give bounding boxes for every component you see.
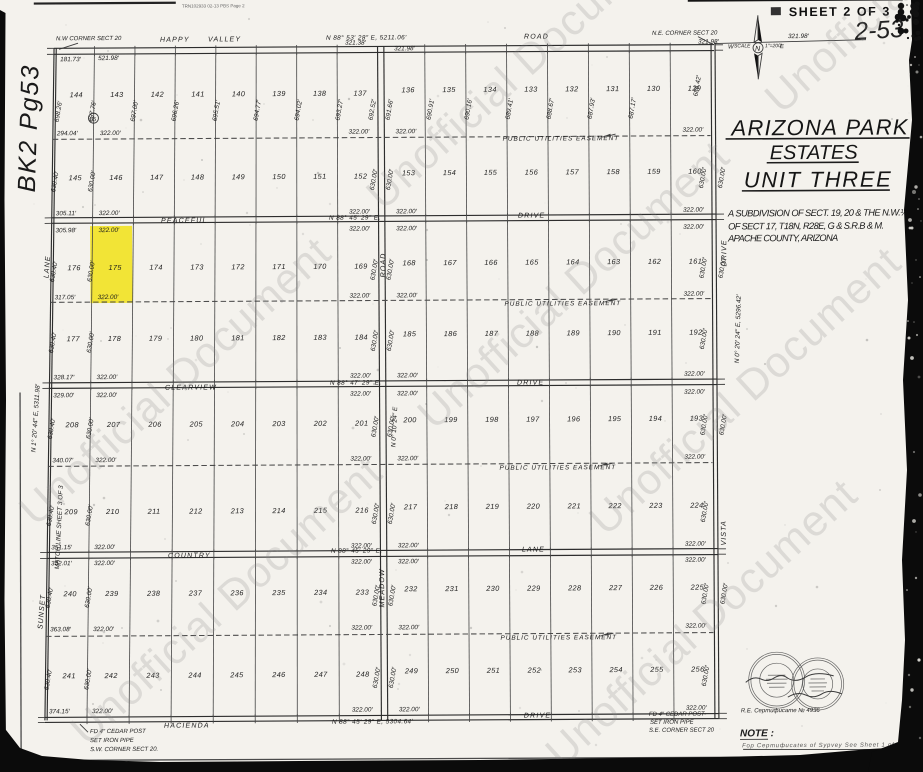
svg-text:147: 147 xyxy=(150,173,164,182)
svg-text:HACIENDA: HACIENDA xyxy=(164,722,210,729)
svg-text:322.00′: 322.00′ xyxy=(349,293,371,300)
svg-text:MEADOW: MEADOW xyxy=(377,568,386,607)
svg-text:SET IRON PIPE: SET IRON PIPE xyxy=(650,720,695,726)
svg-text:178: 178 xyxy=(108,334,122,343)
svg-text:146: 146 xyxy=(109,173,123,182)
svg-text:N.W CORNER SECT 20: N.W CORNER SECT 20 xyxy=(56,36,122,42)
svg-text:322.00′: 322.00′ xyxy=(397,455,419,462)
svg-text:168: 168 xyxy=(402,258,416,267)
svg-text:317.05′: 317.05′ xyxy=(55,294,77,301)
svg-text:169: 169 xyxy=(354,262,367,271)
svg-text:630.00′: 630.00′ xyxy=(387,502,398,525)
svg-text:322.00′: 322.00′ xyxy=(349,129,371,136)
svg-text:173: 173 xyxy=(190,262,203,271)
svg-text:221: 221 xyxy=(567,501,581,510)
svg-text:238: 238 xyxy=(146,589,161,598)
svg-text:521.98′: 521.98′ xyxy=(98,55,120,62)
svg-text:214: 214 xyxy=(271,506,285,515)
svg-text:185: 185 xyxy=(403,329,417,338)
svg-text:145: 145 xyxy=(69,173,83,182)
svg-text:322.00′: 322.00′ xyxy=(396,225,418,232)
svg-text:230: 230 xyxy=(485,584,499,593)
svg-text:630.00′: 630.00′ xyxy=(387,584,398,607)
svg-text:130: 130 xyxy=(647,84,660,93)
svg-text:166: 166 xyxy=(484,258,498,267)
svg-text:694.77′: 694.77′ xyxy=(253,99,264,122)
svg-text:322.00′: 322.00′ xyxy=(100,130,122,137)
svg-text:294.04′: 294.04′ xyxy=(56,130,79,137)
svg-text:204: 204 xyxy=(230,419,244,428)
svg-text:N: N xyxy=(755,46,761,53)
svg-text:696.26′: 696.26′ xyxy=(171,99,182,122)
svg-text:N 88° 45′ 29″ E, 5304.64′: N 88° 45′ 29″ E, 5304.64′ xyxy=(332,717,414,725)
svg-text:N 0° 20′ 24″ E, 5296.42′: N 0° 20′ 24″ E, 5296.42′ xyxy=(733,294,743,364)
svg-text:322.00′: 322.00′ xyxy=(97,374,119,381)
svg-text:183: 183 xyxy=(313,333,326,342)
svg-text:630.40′: 630.40′ xyxy=(48,331,59,354)
svg-text:186: 186 xyxy=(444,329,458,338)
svg-text:688.67′: 688.67′ xyxy=(546,97,557,120)
svg-text:LANE: LANE xyxy=(522,547,545,554)
svg-text:203: 203 xyxy=(271,419,285,428)
svg-text:143: 143 xyxy=(110,90,123,99)
svg-text:305.98′: 305.98′ xyxy=(55,227,77,234)
svg-text:172: 172 xyxy=(231,262,244,271)
svg-text:182: 182 xyxy=(272,333,285,342)
svg-text:155: 155 xyxy=(484,168,498,177)
svg-text:695.51′: 695.51′ xyxy=(212,99,223,122)
svg-text:PEACEFUL: PEACEFUL xyxy=(161,217,208,224)
svg-text:322.00′: 322.00′ xyxy=(398,624,420,631)
svg-text:227: 227 xyxy=(608,583,623,592)
svg-text:322.00′: 322.00′ xyxy=(93,626,115,633)
svg-text:139: 139 xyxy=(272,89,285,98)
svg-text:247: 247 xyxy=(313,670,328,679)
svg-text:322.00′: 322.00′ xyxy=(350,391,372,398)
svg-text:630.00′: 630.00′ xyxy=(84,504,95,527)
svg-text:TRN102933 02-13 PBS Page 2: TRN102933 02-13 PBS Page 2 xyxy=(182,3,245,8)
svg-text:165: 165 xyxy=(525,258,539,267)
svg-text:228: 228 xyxy=(567,583,582,592)
svg-text:PUBLIC UTILITIES EASEMENT: PUBLIC UTILITIES EASEMENT xyxy=(503,135,620,143)
svg-text:167: 167 xyxy=(443,258,457,267)
svg-text:321.98′: 321.98′ xyxy=(394,45,416,52)
svg-text:Unofficial Document: Unofficial Document xyxy=(61,448,391,755)
svg-text:157: 157 xyxy=(566,167,580,176)
svg-text:OF SECT 17, T18N, R28E, G: OF SECT 17, T18N, R28E, G & S.R.B & M. xyxy=(728,221,884,232)
svg-text:630.00′: 630.00′ xyxy=(386,329,397,352)
svg-text:SCALE: SCALE xyxy=(734,43,751,49)
svg-text:363.08′: 363.08′ xyxy=(50,626,72,633)
svg-text:N 1° 20′ 44″ E, 5311.98′: N 1° 20′ 44″ E, 5311.98′ xyxy=(29,383,41,452)
svg-text:FD 4″ CEDAR POST-: FD 4″ CEDAR POST- xyxy=(649,712,706,718)
svg-text:HAPPY: HAPPY xyxy=(160,37,190,44)
svg-text:N 88° 53′ 28″ E, 5211.06′: N 88° 53′ 28″ E, 5211.06′ xyxy=(326,33,407,41)
svg-text:136: 136 xyxy=(401,85,415,94)
svg-text:210: 210 xyxy=(105,507,119,516)
svg-text:211: 211 xyxy=(147,507,161,516)
svg-text:R.E. Cертифисате № 4936: R.E. Cертифисате № 4936 xyxy=(741,707,821,714)
svg-text:322.00′: 322.00′ xyxy=(352,707,374,714)
svg-text:N.E. CORNER SECT 20: N.E. CORNER SECT 20 xyxy=(652,31,718,37)
svg-text:DRIVE: DRIVE xyxy=(719,239,728,266)
svg-text:322.00′: 322.00′ xyxy=(94,560,116,567)
svg-text:322.00′: 322.00′ xyxy=(397,372,419,379)
svg-text:N 88° 47′ 29″ E,: N 88° 47′ 29″ E, xyxy=(330,378,382,386)
svg-text:COUNTRY: COUNTRY xyxy=(168,552,211,559)
svg-text:N 88° 45′ 29″ E,: N 88° 45′ 29″ E, xyxy=(331,546,383,554)
svg-text:BK2 Pg53: BK2 Pg53 xyxy=(13,63,45,192)
svg-text:252: 252 xyxy=(527,666,541,675)
svg-text:234: 234 xyxy=(313,588,327,597)
svg-text:253: 253 xyxy=(568,665,582,674)
svg-text:APACHE COUNTY, ARIZONA: APACHE COUNTY, ARIZONA xyxy=(727,233,838,244)
svg-text:630.00′: 630.00′ xyxy=(84,586,95,609)
svg-text:200: 200 xyxy=(402,415,416,424)
svg-text:LANE: LANE xyxy=(41,255,52,278)
svg-text:322.00′: 322.00′ xyxy=(98,227,120,234)
svg-text:148: 148 xyxy=(191,172,205,181)
svg-text:229: 229 xyxy=(526,584,540,593)
svg-text:135: 135 xyxy=(442,85,456,94)
svg-text:305.11′: 305.11′ xyxy=(56,210,77,217)
svg-text:140: 140 xyxy=(232,89,245,98)
svg-text:131: 131 xyxy=(606,84,619,93)
svg-text:322.00′: 322.00′ xyxy=(98,294,120,301)
svg-text:250: 250 xyxy=(445,666,459,675)
svg-text:138: 138 xyxy=(313,89,327,98)
svg-text:181.73′: 181.73′ xyxy=(60,56,82,63)
svg-text:194: 194 xyxy=(649,414,662,423)
svg-text:217: 217 xyxy=(403,502,418,511)
svg-text:212: 212 xyxy=(188,506,202,515)
svg-text:208: 208 xyxy=(64,420,79,429)
svg-text:322.00′: 322.00′ xyxy=(349,226,371,233)
svg-text:PUBLIC UTILITIES EASEMENT: PUBLIC UTILITIES EASEMENT xyxy=(500,634,617,642)
svg-text:ESTATES: ESTATES xyxy=(770,142,859,165)
svg-text:175: 175 xyxy=(108,263,122,272)
svg-text:687.17′: 687.17′ xyxy=(628,97,639,120)
svg-text:Unofficial Document: Unofficial Document xyxy=(580,238,910,545)
svg-text:213: 213 xyxy=(230,506,244,515)
svg-text:N 0° 10′ 24″ E: N 0° 10′ 24″ E xyxy=(389,406,399,447)
svg-text:322.00′: 322.00′ xyxy=(683,291,705,298)
svg-text:ROAD: ROAD xyxy=(378,253,387,278)
svg-text:190: 190 xyxy=(607,328,620,337)
svg-text:NOTE :: NOTE : xyxy=(740,728,774,739)
svg-text:162: 162 xyxy=(648,257,661,266)
svg-text:VALLEY: VALLEY xyxy=(208,36,241,43)
svg-text:N 88° 45′ 29″ E,: N 88° 45′ 29″ E, xyxy=(329,213,381,221)
svg-text:322.00′: 322.00′ xyxy=(684,371,706,378)
svg-text:322.00′: 322.00′ xyxy=(351,559,373,566)
svg-text:322.00′: 322.00′ xyxy=(685,541,707,548)
svg-text:176: 176 xyxy=(67,263,81,272)
svg-text:630.00′: 630.00′ xyxy=(87,170,98,193)
svg-text:322.00′: 322.00′ xyxy=(96,392,118,399)
svg-text:154: 154 xyxy=(443,168,456,177)
svg-text:322.00′: 322.00′ xyxy=(351,625,373,632)
svg-text:630.40′: 630.40′ xyxy=(43,668,54,691)
svg-text:249: 249 xyxy=(404,666,418,675)
svg-text:137: 137 xyxy=(353,89,367,98)
svg-text:197: 197 xyxy=(526,415,540,424)
svg-text:Unofficial Document: Unofficial Document xyxy=(357,0,687,219)
svg-text:05: 05 xyxy=(89,117,96,123)
svg-text:151: 151 xyxy=(313,172,326,181)
svg-text:232: 232 xyxy=(403,584,417,593)
svg-text:322.00′: 322.00′ xyxy=(99,210,121,217)
svg-text:DRIVE: DRIVE xyxy=(517,380,544,387)
svg-text:205: 205 xyxy=(189,419,204,428)
svg-text:PUBLIC UTILITIES EASEMENT: PUBLIC UTILITIES EASEMENT xyxy=(499,464,616,472)
svg-text:322.00′: 322.00′ xyxy=(396,292,418,299)
svg-text:142: 142 xyxy=(151,90,164,99)
svg-text:149: 149 xyxy=(232,172,245,181)
svg-text:220: 220 xyxy=(526,502,540,511)
svg-text:S.E. CORNER SECT 20: S.E. CORNER SECT 20 xyxy=(649,728,715,734)
svg-text:329.00′: 329.00′ xyxy=(53,392,75,399)
svg-text:DRIVE: DRIVE xyxy=(524,712,551,719)
svg-text:177: 177 xyxy=(67,334,81,343)
svg-text:694.02′: 694.02′ xyxy=(294,99,305,122)
svg-text:239: 239 xyxy=(104,589,118,598)
svg-text:179: 179 xyxy=(149,334,162,343)
svg-text:244: 244 xyxy=(187,671,201,680)
svg-text:184: 184 xyxy=(355,333,368,342)
svg-text:DRIVE: DRIVE xyxy=(518,213,545,220)
svg-text:322.00′: 322.00′ xyxy=(398,542,420,549)
svg-text:630.40′: 630.40′ xyxy=(47,417,58,440)
svg-text:687.93′: 687.93′ xyxy=(587,97,598,120)
svg-text:191: 191 xyxy=(648,328,661,337)
svg-text:Fор Cертифисаtеs оf Sурvеу Sее: Fор Cертифисаtеs оf Sурvеу Sее Shееt 1 о… xyxy=(742,742,901,749)
svg-text:158: 158 xyxy=(607,167,621,176)
svg-text:630.40′: 630.40′ xyxy=(50,170,61,193)
svg-text:692.52′: 692.52′ xyxy=(368,98,379,121)
svg-text:ARIZONA PARK: ARIZONA PARK xyxy=(729,114,908,140)
svg-text:UNIT THREE: UNIT THREE xyxy=(744,167,891,193)
svg-text:1″=200′: 1″=200′ xyxy=(765,43,783,49)
svg-text:A SUBDIVISION OF SECT. 19, 20: A SUBDIVISION OF SECT. 19, 20 & THE N.W.… xyxy=(727,207,908,218)
svg-text:630.00′: 630.00′ xyxy=(86,331,97,354)
svg-text:201: 201 xyxy=(354,419,368,428)
svg-text:219: 219 xyxy=(485,502,499,511)
svg-text:322.00′: 322.00′ xyxy=(684,389,706,396)
svg-text:132: 132 xyxy=(565,84,578,93)
svg-text:322.00′: 322.00′ xyxy=(683,127,705,134)
svg-text:693.27′: 693.27′ xyxy=(335,98,346,121)
svg-text:322.00′: 322.00′ xyxy=(398,558,420,565)
svg-text:322.00′: 322.00′ xyxy=(94,544,116,551)
svg-text:241: 241 xyxy=(61,671,75,680)
svg-text:246: 246 xyxy=(271,670,286,679)
svg-text:248: 248 xyxy=(355,670,370,679)
svg-text:686.42′: 686.42′ xyxy=(692,74,703,97)
svg-text:144: 144 xyxy=(70,90,83,99)
svg-text:251: 251 xyxy=(486,666,500,675)
svg-text:SUNSET: SUNSET xyxy=(35,594,47,630)
svg-text:240: 240 xyxy=(62,589,76,598)
svg-text:226: 226 xyxy=(649,583,664,592)
svg-text:VISTA: VISTA xyxy=(719,520,728,545)
svg-text:189: 189 xyxy=(567,328,580,337)
svg-text:196: 196 xyxy=(567,414,581,423)
svg-text:231: 231 xyxy=(444,584,458,593)
svg-text:218: 218 xyxy=(444,502,459,511)
svg-text:198: 198 xyxy=(485,415,499,424)
svg-text:245: 245 xyxy=(229,670,244,679)
svg-text:321.98′: 321.98′ xyxy=(788,33,810,40)
svg-text:233: 233 xyxy=(355,588,369,597)
svg-text:328.17′: 328.17′ xyxy=(54,374,76,381)
svg-text:630.00′: 630.00′ xyxy=(388,666,399,689)
svg-text:697.00′: 697.00′ xyxy=(130,99,141,122)
svg-text:141: 141 xyxy=(191,89,204,98)
svg-text:202: 202 xyxy=(313,419,327,428)
svg-text:156: 156 xyxy=(525,168,539,177)
svg-text:150: 150 xyxy=(272,172,285,181)
svg-text:691.66′: 691.66′ xyxy=(385,98,396,121)
svg-text:630.00′: 630.00′ xyxy=(83,668,94,691)
svg-text:322.00′: 322.00′ xyxy=(683,224,705,231)
svg-text:322.00′: 322.00′ xyxy=(399,706,421,713)
svg-text:322.00′: 322.00′ xyxy=(685,557,707,564)
svg-text:174: 174 xyxy=(149,263,162,272)
svg-text:195: 195 xyxy=(608,414,622,423)
